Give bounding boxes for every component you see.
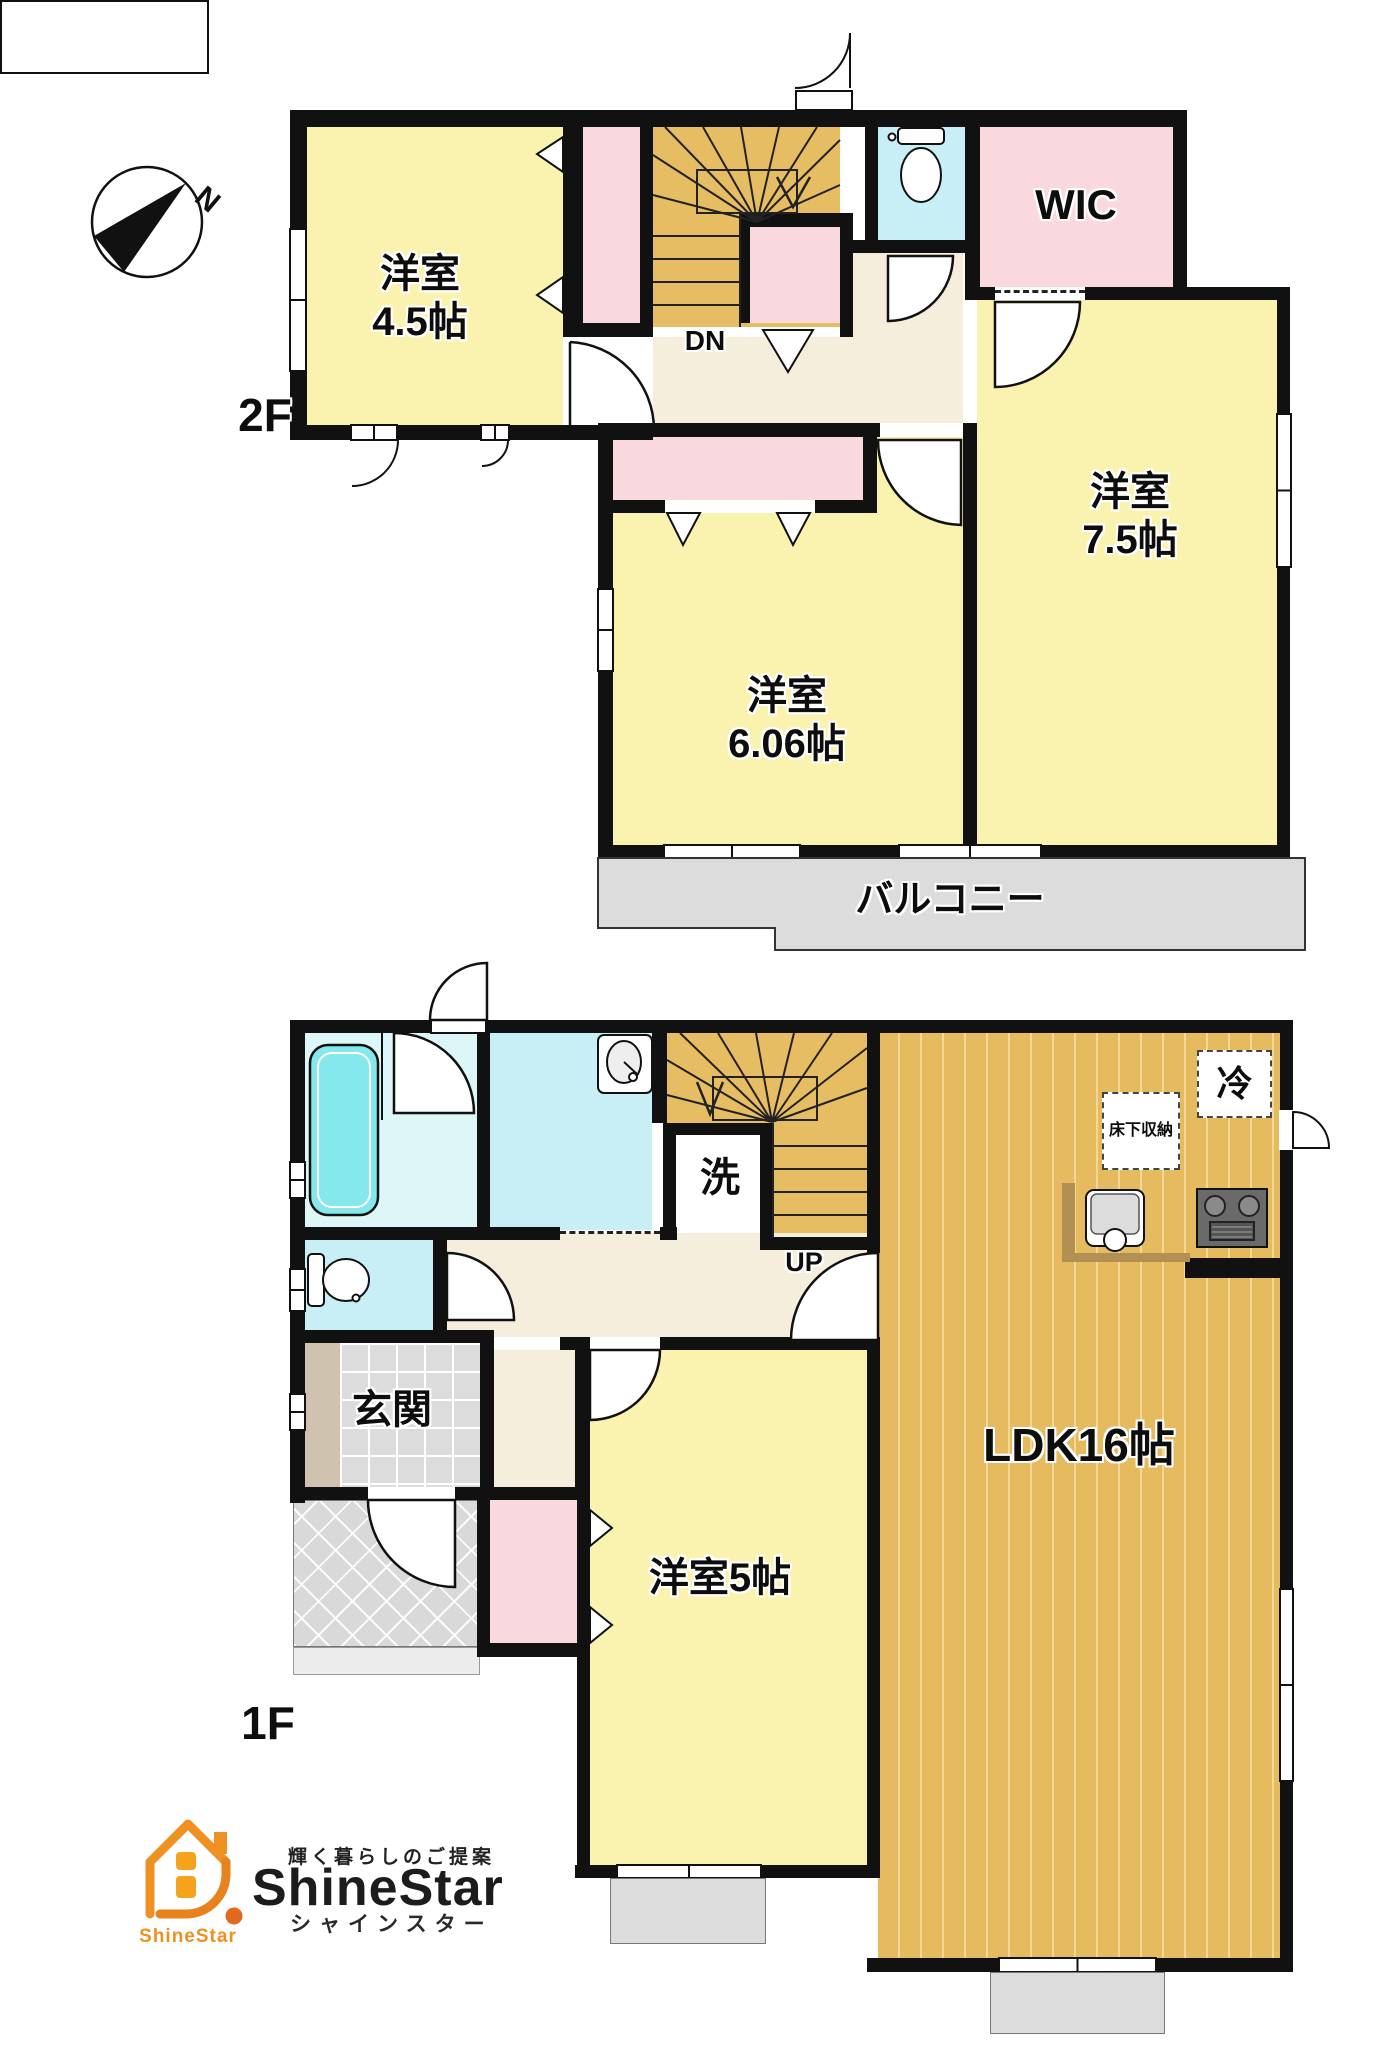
wall xyxy=(290,110,1187,127)
compass-icon: N xyxy=(92,167,226,277)
hallway-2f-toilet-side xyxy=(853,253,963,337)
kitchen-counter-edge xyxy=(1062,1183,1075,1262)
bedroom606-size: 6.06帖 xyxy=(687,720,887,768)
exterior-door-2f xyxy=(795,90,853,111)
room-bedroom5 xyxy=(590,1350,867,1865)
door-opening xyxy=(880,424,963,436)
window xyxy=(1276,413,1292,568)
wall xyxy=(575,1865,618,1878)
bathroom xyxy=(305,1033,477,1227)
shinestar-logo-icon: ShineStar xyxy=(139,1824,242,1947)
wic-label: WIC xyxy=(1016,180,1136,230)
wall xyxy=(477,1500,490,1657)
window xyxy=(289,1161,306,1199)
closet-bedroom45 xyxy=(583,123,640,323)
washroom xyxy=(490,1033,652,1230)
wall xyxy=(760,1865,880,1878)
window xyxy=(998,1957,1157,1973)
porch-apron xyxy=(293,1647,480,1675)
room-ldk xyxy=(878,1033,1280,1958)
terrace-step xyxy=(610,1878,766,1944)
hallway-1f-vertical xyxy=(494,1350,575,1487)
wall xyxy=(840,213,853,337)
toilet-room-2f xyxy=(878,123,965,240)
laundry-label: 洗 xyxy=(692,1154,748,1202)
toilet-room-1f xyxy=(305,1240,433,1330)
wall xyxy=(577,1500,590,1657)
door-opening xyxy=(1279,1110,1294,1150)
wall xyxy=(652,1033,667,1123)
wall xyxy=(1173,110,1187,300)
window xyxy=(289,228,307,372)
bedroom45-size: 4.5帖 xyxy=(327,298,513,346)
underfloor-storage-box: 床下収納 xyxy=(1102,1092,1180,1170)
door-opening xyxy=(368,1488,455,1500)
terrace-step xyxy=(990,1972,1165,2034)
wall xyxy=(1280,1033,1293,1972)
stairs-down-label: DN xyxy=(670,324,740,358)
bedroom75-label: 洋室 7.5帖 xyxy=(1035,468,1225,564)
wall xyxy=(965,110,980,300)
wall xyxy=(575,1350,590,1487)
floor2-label: 2F xyxy=(225,388,305,443)
wall xyxy=(853,240,967,253)
entrance-porch xyxy=(293,1500,480,1647)
wall xyxy=(480,1343,494,1500)
window xyxy=(289,1268,306,1312)
wall xyxy=(290,1487,368,1500)
closet-bedroom606 xyxy=(613,437,863,500)
wall xyxy=(740,213,853,227)
wall xyxy=(598,500,665,513)
shinestar-icon-caption: ShineStar xyxy=(139,1926,237,1947)
bedroom45-name: 洋室 xyxy=(327,250,513,298)
stairs-landing-closet-2f xyxy=(750,227,840,323)
kitchen-counter xyxy=(0,0,209,74)
wall xyxy=(1277,287,1290,858)
wall xyxy=(663,1123,676,1233)
floor1-label: 1F xyxy=(228,1696,308,1751)
wall xyxy=(455,1487,590,1500)
wall xyxy=(640,110,653,323)
wall xyxy=(477,1033,490,1227)
window xyxy=(663,844,801,860)
bedroom45-label: 洋室 4.5帖 xyxy=(327,250,513,346)
wall xyxy=(1187,287,1290,300)
bedroom75-name: 洋室 xyxy=(1035,468,1225,516)
window xyxy=(1279,1588,1294,1782)
wall xyxy=(477,1643,590,1657)
wall xyxy=(560,1337,590,1350)
floor-plan-canvas: 床下収納 冷 N xyxy=(0,0,1373,2048)
entrance-side-strip xyxy=(305,1343,340,1487)
underfloor-storage-label: 床下収納 xyxy=(1109,1121,1173,1140)
room-bedroom75-entry xyxy=(877,437,963,513)
wall xyxy=(760,1123,773,1250)
wall xyxy=(563,323,653,337)
closet-bedroom5 xyxy=(490,1500,577,1643)
kitchen-counter-edge xyxy=(1062,1253,1190,1262)
wall xyxy=(815,500,877,513)
room-bedroom75 xyxy=(977,300,1277,845)
window xyxy=(597,588,614,672)
wall xyxy=(1085,287,1187,300)
window xyxy=(898,844,1042,860)
ldk-label: LDK16帖 xyxy=(929,1418,1229,1473)
compass-north-label: N xyxy=(189,180,227,219)
wall xyxy=(865,110,878,253)
wall xyxy=(290,1227,490,1240)
wall xyxy=(433,1240,447,1330)
exterior-door-washroom xyxy=(430,1019,487,1034)
wall xyxy=(1185,1258,1293,1278)
bedroom75-size: 7.5帖 xyxy=(1035,516,1225,564)
stairs-1f xyxy=(667,1033,867,1123)
balcony-label: バルコニー xyxy=(790,878,1110,924)
wall xyxy=(663,1123,773,1135)
window xyxy=(350,424,398,441)
sliding-opening xyxy=(995,290,1085,293)
window xyxy=(289,1393,306,1431)
wall xyxy=(740,227,750,323)
refrigerator-box: 冷 xyxy=(1197,1050,1272,1118)
bedroom606-label: 洋室 6.06帖 xyxy=(687,672,887,768)
wall xyxy=(660,1337,880,1350)
wall xyxy=(290,1330,494,1343)
window xyxy=(480,424,510,441)
wall xyxy=(477,1227,560,1240)
wall xyxy=(563,110,583,337)
sliding-opening xyxy=(560,1231,660,1234)
window xyxy=(616,1864,762,1879)
wall xyxy=(967,287,995,300)
stairs-1f-lower xyxy=(773,1123,867,1237)
stairs-up-label: UP xyxy=(773,1246,835,1278)
bedroom606-name: 洋室 xyxy=(687,672,887,720)
bedroom5-label: 洋室5帖 xyxy=(605,1554,835,1602)
wall xyxy=(963,423,977,858)
wall xyxy=(867,1020,880,1253)
refrigerator-label: 冷 xyxy=(1216,1062,1252,1105)
logo-brand-kana: シャインスター xyxy=(290,1908,493,1938)
wall xyxy=(867,1340,880,1878)
wall xyxy=(598,423,880,437)
wall xyxy=(577,1657,590,1878)
entrance-label: 玄関 xyxy=(346,1386,438,1434)
